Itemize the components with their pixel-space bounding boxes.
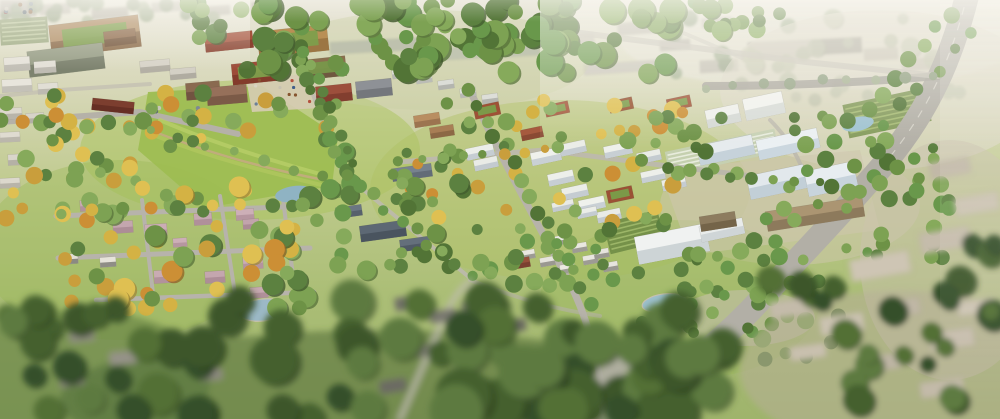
building: [0, 131, 20, 142]
haze-overlay: [940, 0, 1000, 419]
building: [0, 177, 20, 188]
building: [2, 78, 33, 93]
building: [173, 238, 188, 248]
haze-overlay: [540, 0, 1000, 150]
masterplan-aerial-render: [0, 0, 1000, 419]
aerial-render-canvas: [0, 0, 1000, 419]
building: [206, 84, 247, 105]
haze-overlay: [0, 0, 1000, 22]
building: [205, 270, 226, 283]
building: [437, 79, 454, 90]
building: [100, 256, 117, 267]
building: [355, 78, 393, 99]
